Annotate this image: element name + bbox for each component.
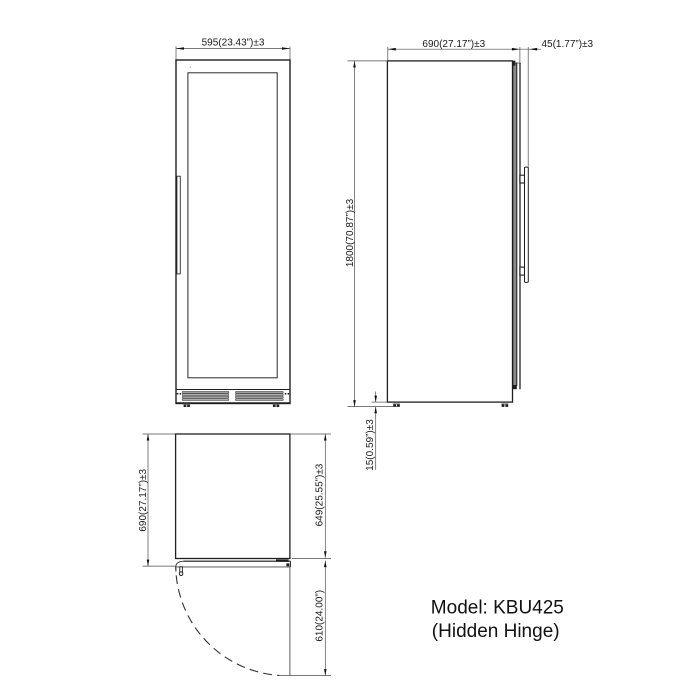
svg-text:1800(70.87”)±3: 1800(70.87”)±3 [345, 198, 356, 267]
svg-text:(Hidden Hinge): (Hidden Hinge) [432, 621, 560, 642]
svg-text:690(27.17”)±3: 690(27.17”)±3 [422, 39, 485, 50]
svg-text:45(1.77”)±3: 45(1.77”)±3 [541, 39, 593, 50]
svg-text:15(0.59”)±3: 15(0.59”)±3 [365, 419, 376, 471]
svg-text:Model: KBU425: Model: KBU425 [431, 598, 564, 619]
svg-text:649(25.55”)±3: 649(25.55”)±3 [314, 463, 325, 526]
svg-text:610(24.00”): 610(24.00”) [314, 590, 325, 642]
svg-text:595(23.43”)±3: 595(23.43”)±3 [202, 37, 265, 48]
svg-text:690(27.17”)±3: 690(27.17”)±3 [138, 468, 149, 531]
